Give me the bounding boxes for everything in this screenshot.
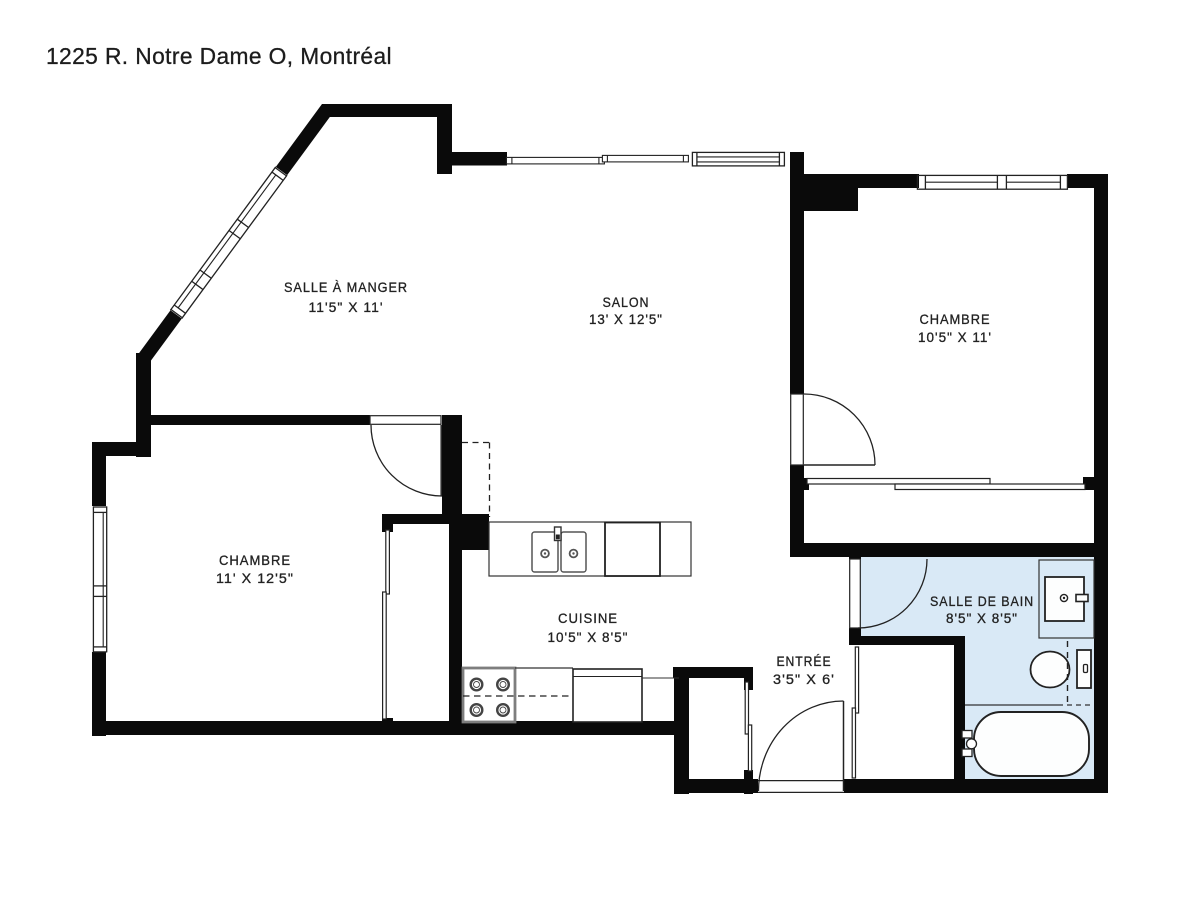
svg-text:SALLE DE BAIN: SALLE DE BAIN [930,594,1034,609]
svg-text:CUISINE: CUISINE [558,611,618,626]
svg-text:SALLE À MANGER: SALLE À MANGER [284,280,408,295]
svg-text:13' X 12'5": 13' X 12'5" [589,312,663,327]
svg-text:10'5" X 8'5": 10'5" X 8'5" [548,630,629,645]
svg-text:8'5" X 8'5": 8'5" X 8'5" [946,611,1018,626]
svg-text:11' X 12'5": 11' X 12'5" [216,571,294,586]
svg-text:1225 R. Notre Dame O, Montréal: 1225 R. Notre Dame O, Montréal [46,43,392,69]
svg-text:CHAMBRE: CHAMBRE [920,312,991,327]
svg-text:CHAMBRE: CHAMBRE [219,553,291,568]
svg-text:11'5" X 11': 11'5" X 11' [309,300,384,315]
svg-text:10'5" X 11': 10'5" X 11' [918,330,992,345]
svg-text:ENTRÉE: ENTRÉE [777,654,832,669]
svg-text:3'5" X 6': 3'5" X 6' [773,672,835,687]
svg-text:SALON: SALON [603,295,650,310]
